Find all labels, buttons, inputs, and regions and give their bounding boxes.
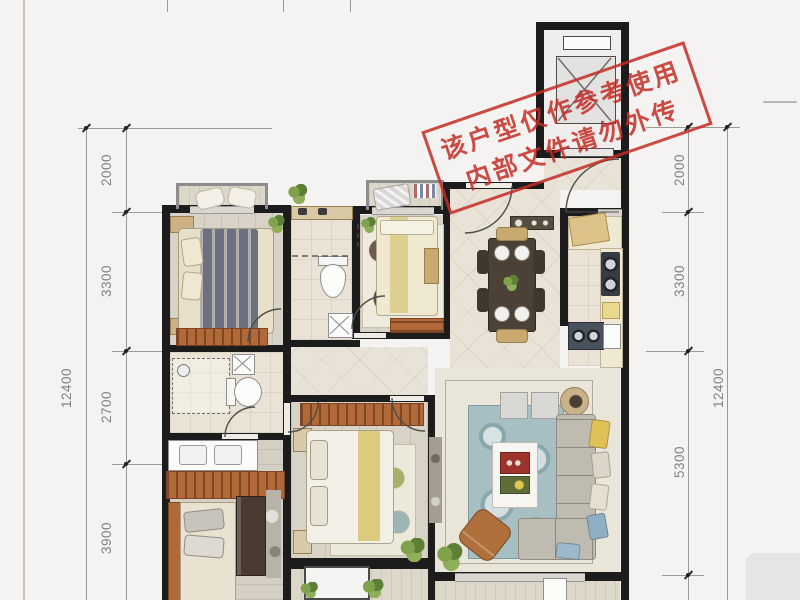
bedroom-2-wardrobe bbox=[390, 318, 444, 333]
washing-machine bbox=[328, 313, 353, 338]
wall-bath1-bottom bbox=[283, 340, 360, 347]
scroll-indicator-line bbox=[763, 101, 797, 103]
dim-left-2700: 2700 bbox=[99, 375, 115, 439]
elevator-control-panel bbox=[563, 36, 611, 50]
balcony-1-plant bbox=[288, 184, 308, 204]
floor-plan-page: 2000 3300 2700 3900 12400 2000 3300 5300… bbox=[0, 0, 800, 600]
page-left-edge-line bbox=[23, 0, 25, 600]
dining-plate bbox=[514, 306, 530, 322]
bed2-door-gap bbox=[354, 333, 386, 338]
bedroom-1-pillow bbox=[181, 271, 204, 301]
master-door-gap bbox=[390, 396, 424, 401]
bedroom-3-pillow bbox=[183, 508, 225, 533]
bottom-right-card-corner bbox=[746, 553, 800, 600]
dining-chair-top bbox=[496, 227, 528, 241]
wall-right-main bbox=[621, 152, 629, 600]
dim-right-total: 12400 bbox=[711, 356, 727, 420]
kitchen-cutting-board bbox=[568, 212, 610, 247]
living-plant bbox=[437, 543, 463, 571]
master-runner bbox=[358, 431, 380, 541]
balcony-plant bbox=[300, 582, 319, 598]
bathroom-1-sink-fixture bbox=[318, 208, 327, 215]
wall-bath1-bed2 bbox=[352, 208, 360, 339]
balcony-1-rail-right bbox=[265, 183, 268, 209]
bedroom-1-duvet bbox=[200, 229, 258, 330]
dining-chair-right bbox=[533, 250, 545, 274]
bedroom-1-pillow bbox=[180, 237, 204, 268]
living-side-basket bbox=[560, 387, 589, 416]
dim-left-3300: 3300 bbox=[99, 249, 115, 313]
sofa-cushion-yellow bbox=[588, 419, 611, 449]
wall-bed1-bottom bbox=[162, 345, 291, 352]
sofa-cushion-blue bbox=[555, 542, 581, 560]
dining-chair-left bbox=[477, 288, 489, 312]
kitchen-prep-board bbox=[602, 302, 620, 319]
master-wardrobe bbox=[300, 403, 424, 426]
wall-kitchen-left bbox=[560, 208, 568, 326]
dining-plate bbox=[514, 245, 530, 261]
dim-left-total: 12400 bbox=[59, 356, 75, 420]
bedroom-3-pillow bbox=[183, 534, 225, 558]
sofa-cushion-cream bbox=[591, 451, 612, 479]
balcony-2-curtain bbox=[414, 184, 436, 198]
balcony-1-rail-left bbox=[176, 183, 179, 209]
bedroom-1-plant bbox=[268, 215, 285, 233]
kitchen-cooktop bbox=[601, 252, 620, 296]
bedroom-1-wardrobe bbox=[176, 328, 268, 346]
sofa-cushion-cream bbox=[588, 483, 609, 511]
balcony-plant bbox=[362, 579, 385, 598]
dining-chair-bottom bbox=[496, 329, 528, 343]
coffee-table-red-tray bbox=[500, 452, 530, 474]
south-balcony-floor-right bbox=[435, 581, 620, 600]
vanity-sink bbox=[214, 445, 242, 465]
dining-plate bbox=[494, 306, 510, 322]
master-pillow bbox=[310, 486, 328, 526]
shower-head bbox=[177, 364, 190, 377]
bedroom-3-marble-strip bbox=[266, 490, 281, 578]
bathroom-2-shaft bbox=[232, 354, 255, 375]
sofa-cushion-blue bbox=[586, 513, 609, 541]
bedroom-2-bench bbox=[424, 248, 439, 284]
top-tick-3 bbox=[350, 0, 351, 12]
bathroom-2-toilet-bowl bbox=[234, 377, 262, 407]
master-plant bbox=[400, 538, 426, 562]
bed3-door-gap bbox=[284, 403, 290, 435]
dim-right-3300: 3300 bbox=[672, 249, 688, 313]
kitchen-stove bbox=[568, 322, 604, 350]
bathroom-1-sink-fixture bbox=[298, 208, 307, 215]
balcony-1-rail bbox=[176, 183, 268, 186]
hallway-floor bbox=[291, 347, 428, 402]
living-stool bbox=[500, 392, 528, 419]
dim-left-3900: 3900 bbox=[99, 506, 115, 570]
bath2-door-gap bbox=[222, 434, 258, 439]
tv-wall-cabinet bbox=[429, 437, 442, 523]
kitchen-fridge bbox=[603, 324, 621, 349]
coffee-table-green-tray bbox=[500, 476, 530, 494]
dim-right-5300: 5300 bbox=[672, 430, 688, 494]
dining-chair-left bbox=[477, 250, 489, 274]
water-heater bbox=[543, 578, 567, 600]
dim-right-2000: 2000 bbox=[672, 138, 688, 202]
bedroom-3-closet bbox=[236, 496, 266, 576]
dining-chair-right bbox=[533, 288, 545, 312]
bedroom-2-plant bbox=[361, 217, 376, 233]
master-pillow bbox=[310, 440, 328, 480]
vanity-sink bbox=[179, 445, 207, 465]
living-stool bbox=[531, 392, 559, 419]
bedroom-2-pillow bbox=[380, 220, 434, 235]
balcony-2-rail-left bbox=[366, 180, 369, 210]
top-tick-2 bbox=[283, 0, 284, 12]
top-tick-1 bbox=[167, 0, 168, 12]
dining-plate bbox=[494, 245, 510, 261]
dim-left-2000: 2000 bbox=[99, 138, 115, 202]
dining-centerpiece bbox=[503, 275, 519, 291]
